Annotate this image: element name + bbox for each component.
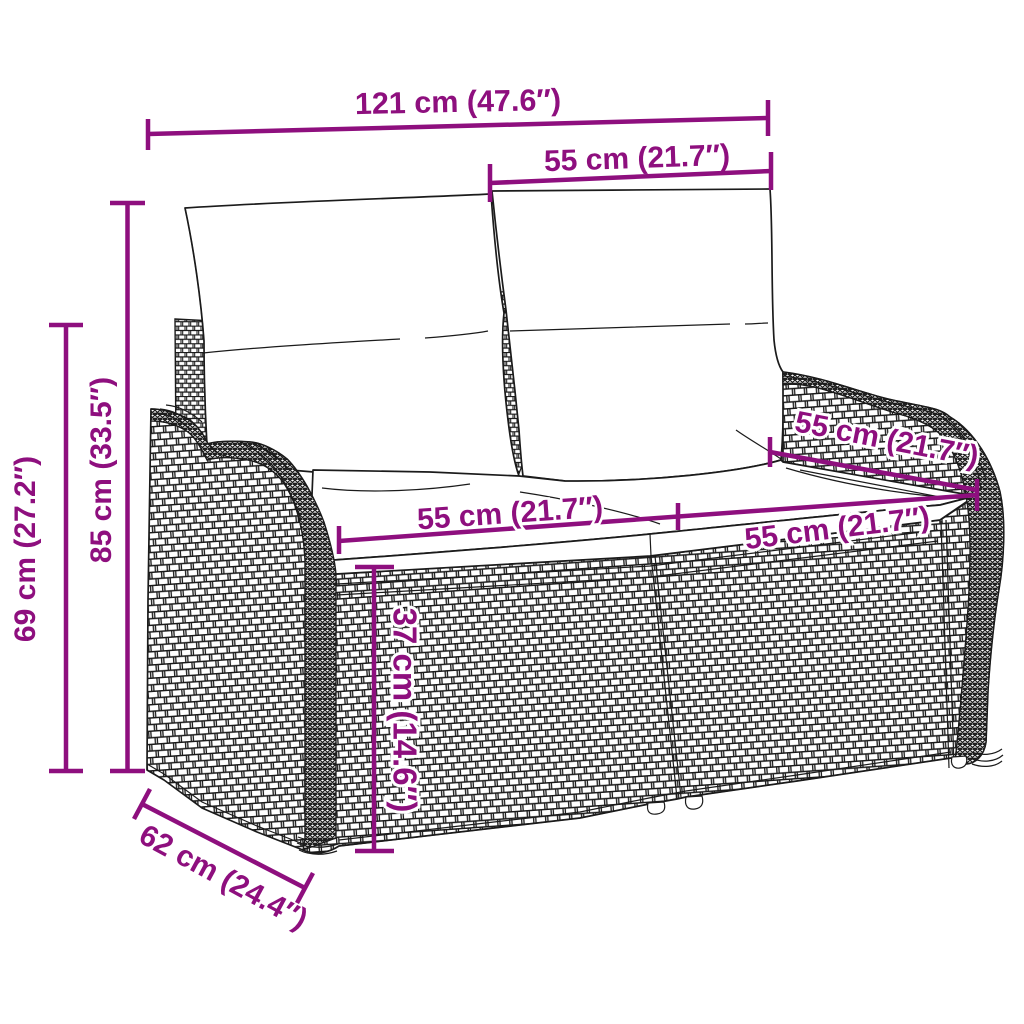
svg-text:85 cm (33.5″): 85 cm (33.5″) — [85, 377, 118, 563]
svg-text:69 cm (27.2″): 69 cm (27.2″) — [9, 456, 42, 642]
svg-text:55 cm (21.7″): 55 cm (21.7″) — [543, 139, 730, 178]
svg-text:121 cm (47.6″): 121 cm (47.6″) — [355, 83, 562, 121]
svg-text:37 cm (14.6″): 37 cm (14.6″) — [387, 608, 424, 813]
